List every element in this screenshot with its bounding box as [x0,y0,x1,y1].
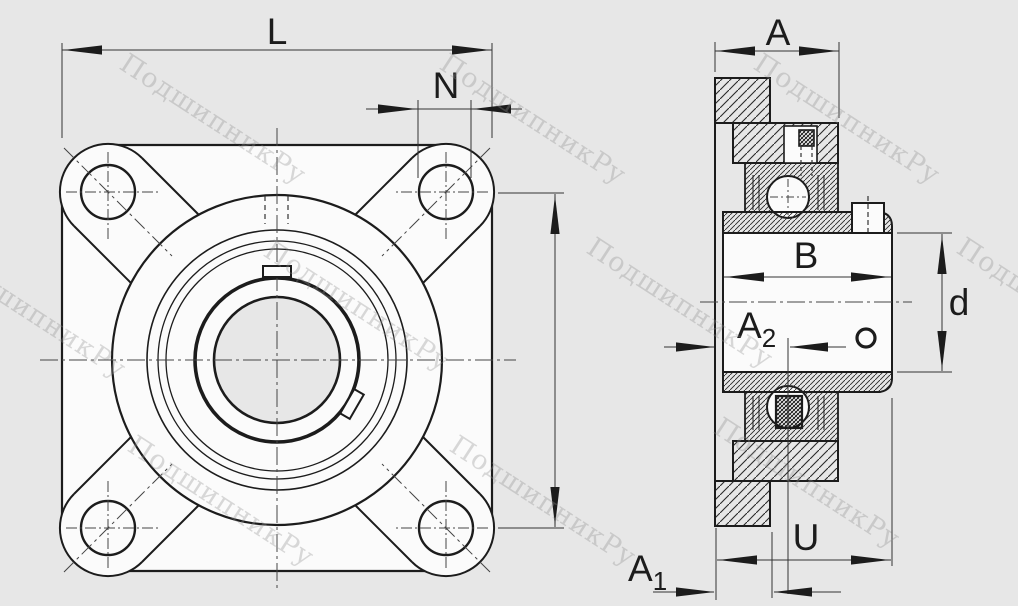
technical-drawing: L N [0,0,1018,613]
dim-label-A: A [766,12,791,53]
dim-label-U: U [793,517,820,558]
drawing-canvas: L N [0,0,1018,613]
dim-label-d: d [949,282,970,323]
dim-label-B: B [794,235,819,276]
collar-set-screw-bottom [776,396,802,428]
bottom-strip [0,606,1018,613]
dim-label-L: L [267,11,288,52]
shaft-screw-hole [857,329,875,347]
